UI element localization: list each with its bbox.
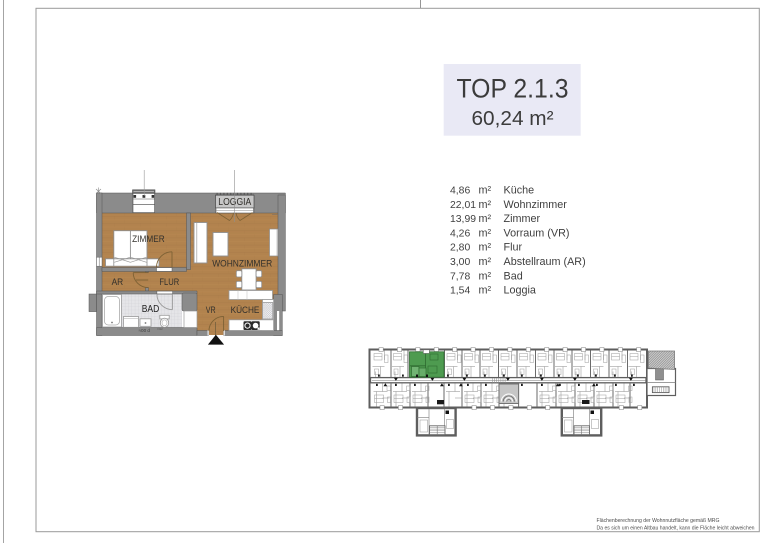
svg-text:WOHNZIMMER: WOHNZIMMER bbox=[212, 258, 272, 269]
svg-text:m²: m² bbox=[479, 270, 492, 282]
svg-text:22,01: 22,01 bbox=[450, 200, 476, 211]
svg-text:4,26: 4,26 bbox=[450, 228, 470, 239]
svg-text:60,24 m²: 60,24 m² bbox=[472, 107, 554, 130]
svg-text:Vorraum (VR): Vorraum (VR) bbox=[504, 227, 570, 239]
svg-text:N12: N12 bbox=[158, 327, 164, 331]
svg-text:≈00 d: ≈00 d bbox=[139, 328, 151, 333]
svg-text:Da es sich um einen Altbau han: Da es sich um einen Altbau handelt, kann… bbox=[597, 525, 755, 531]
svg-text:AR: AR bbox=[112, 277, 124, 288]
svg-text:m²: m² bbox=[479, 242, 492, 254]
svg-text:FLUR: FLUR bbox=[159, 277, 179, 288]
svg-text:Flächenberechnung der Wohnnutz: Flächenberechnung der Wohnnutzfläche gem… bbox=[597, 518, 720, 524]
svg-text:Küche: Küche bbox=[504, 185, 535, 197]
svg-text:Loggia: Loggia bbox=[504, 285, 536, 297]
svg-text:LOGGIA: LOGGIA bbox=[218, 197, 251, 208]
svg-text:KÜCHE: KÜCHE bbox=[231, 305, 260, 315]
svg-text:13,99: 13,99 bbox=[450, 214, 476, 225]
svg-text:1,54: 1,54 bbox=[450, 286, 470, 297]
svg-text:4,86: 4,86 bbox=[450, 186, 470, 197]
svg-text:m²: m² bbox=[479, 256, 492, 268]
svg-text:m²: m² bbox=[479, 185, 492, 197]
svg-text:Bad: Bad bbox=[504, 270, 523, 282]
svg-text:Wohnzimmer: Wohnzimmer bbox=[504, 199, 568, 211]
svg-text:Flur: Flur bbox=[504, 242, 523, 254]
svg-text:7,78: 7,78 bbox=[450, 271, 470, 282]
svg-text:BAD: BAD bbox=[142, 304, 160, 315]
svg-text:Abstellraum (AR): Abstellraum (AR) bbox=[504, 256, 586, 268]
svg-text:2,80: 2,80 bbox=[450, 243, 470, 254]
svg-text:TOP 2.1.3: TOP 2.1.3 bbox=[457, 74, 569, 104]
svg-text:3,00: 3,00 bbox=[450, 257, 470, 268]
svg-text:m²: m² bbox=[479, 227, 492, 239]
svg-text:VR: VR bbox=[206, 305, 216, 315]
svg-text:ZIMMER: ZIMMER bbox=[132, 234, 165, 245]
svg-text:m²: m² bbox=[479, 213, 492, 225]
svg-text:m²: m² bbox=[479, 199, 492, 211]
svg-text:m²: m² bbox=[479, 285, 492, 297]
svg-text:Zimmer: Zimmer bbox=[504, 213, 541, 225]
